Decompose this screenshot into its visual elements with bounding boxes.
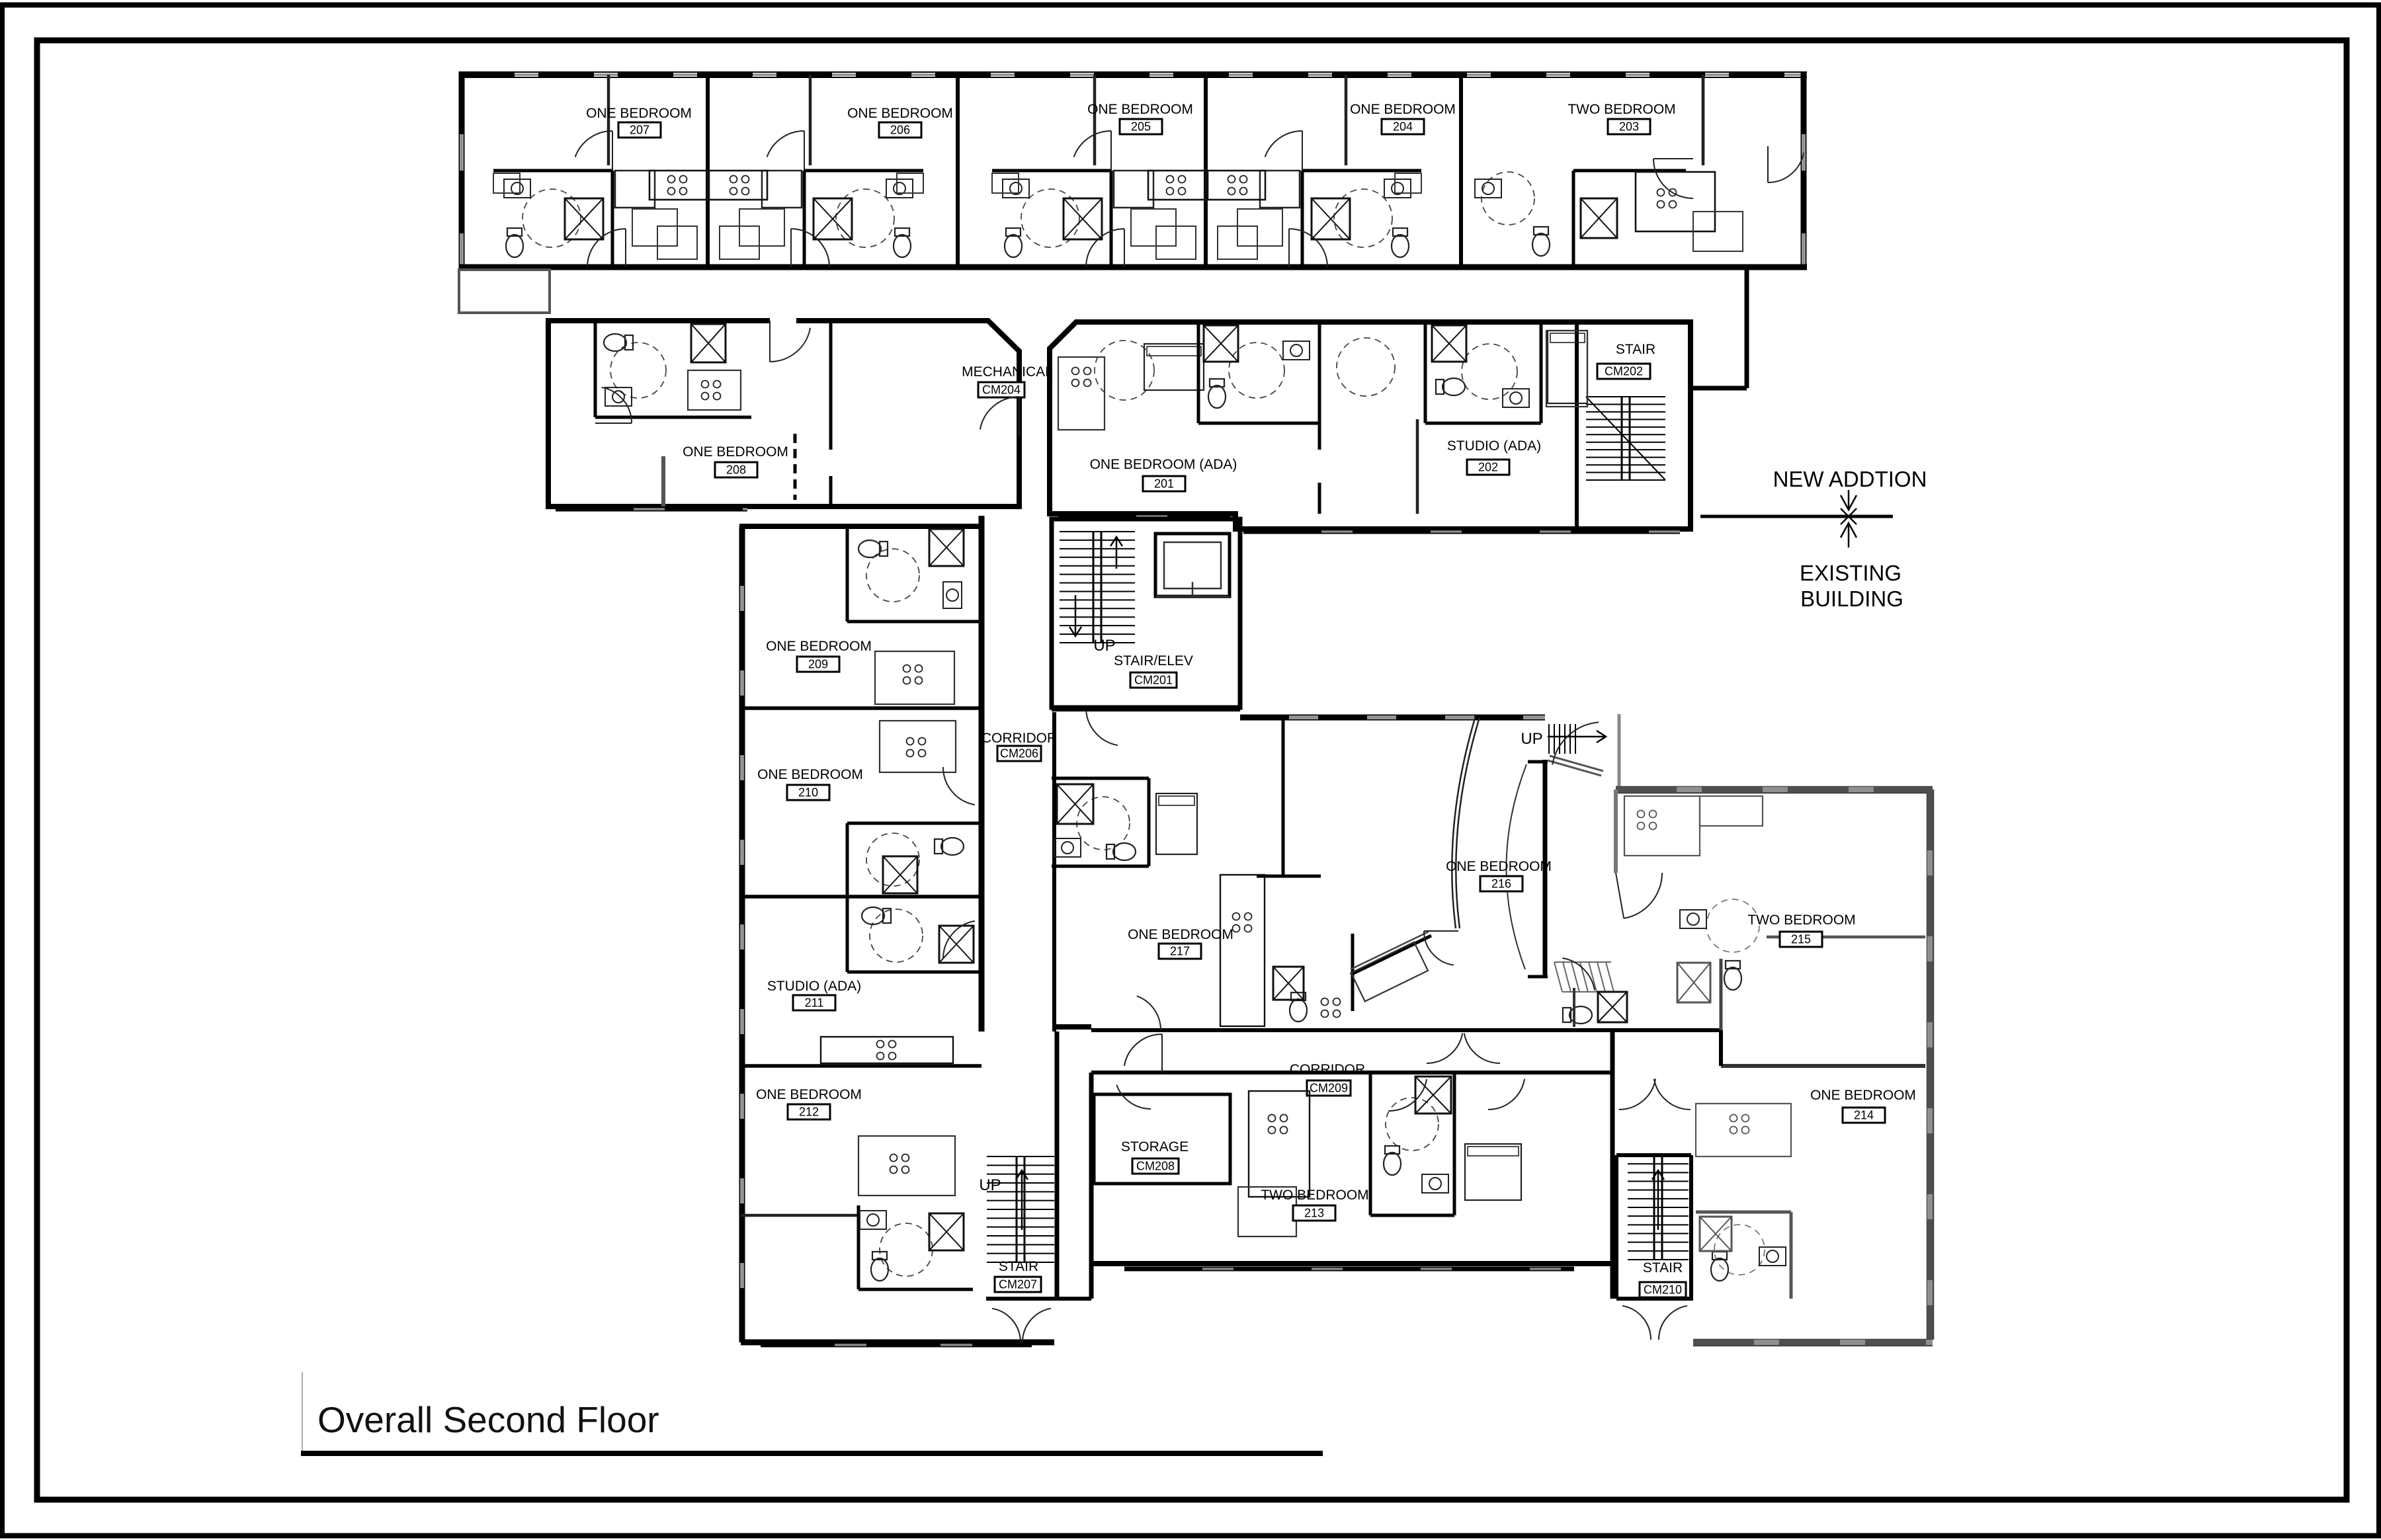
svg-text:ONE BEDROOM: ONE BEDROOM [683,444,788,460]
svg-text:ONE BEDROOM: ONE BEDROOM [1087,102,1193,117]
svg-text:UP: UP [1093,637,1115,655]
svg-text:204: 204 [1393,120,1413,134]
svg-text:TWO BEDROOM: TWO BEDROOM [1567,102,1675,117]
svg-text:ONE BEDROOM: ONE BEDROOM [586,106,692,121]
svg-text:210: 210 [798,786,818,799]
svg-text:CM209: CM209 [1310,1082,1348,1095]
svg-text:STORAGE: STORAGE [1121,1139,1189,1155]
svg-text:TWO BEDROOM: TWO BEDROOM [1747,912,1855,928]
svg-text:CM201: CM201 [1134,674,1173,687]
svg-text:ONE BEDROOM: ONE BEDROOM [1446,859,1552,874]
svg-text:CM204: CM204 [982,384,1021,397]
svg-text:203: 203 [1619,120,1639,134]
svg-text:CM208: CM208 [1136,1160,1175,1173]
svg-text:ONE BEDROOM: ONE BEDROOM [757,767,863,782]
svg-text:205: 205 [1131,120,1151,134]
svg-text:STAIR: STAIR [999,1259,1038,1274]
svg-text:STAIR: STAIR [1616,342,1655,357]
svg-text:207: 207 [630,124,649,137]
svg-text:CORRIDOR: CORRIDOR [982,731,1057,746]
svg-text:NEW ADDTION: NEW ADDTION [1773,467,1927,491]
svg-text:ONE BEDROOM: ONE BEDROOM [847,106,953,121]
svg-text:CM207: CM207 [999,1278,1037,1291]
svg-text:CM202: CM202 [1605,365,1643,378]
svg-text:211: 211 [805,996,824,1010]
svg-text:ONE BEDROOM: ONE BEDROOM [1810,1088,1916,1103]
svg-text:EXISTING: EXISTING [1800,561,1901,585]
svg-text:BUILDING: BUILDING [1800,587,1903,611]
svg-text:Overall Second Floor: Overall Second Floor [317,1399,659,1440]
svg-text:217: 217 [1170,945,1190,958]
svg-text:214: 214 [1854,1109,1874,1122]
svg-text:216: 216 [1491,877,1511,891]
svg-text:STUDIO (ADA): STUDIO (ADA) [767,979,861,994]
svg-text:MECHANICAL: MECHANICAL [962,364,1053,380]
svg-text:UP: UP [979,1176,1001,1194]
svg-text:206: 206 [890,124,910,137]
svg-text:TWO BEDROOM: TWO BEDROOM [1261,1188,1368,1203]
svg-text:CM206: CM206 [1000,747,1038,760]
svg-text:ONE BEDROOM: ONE BEDROOM [1350,102,1456,117]
svg-text:CORRIDOR: CORRIDOR [1290,1062,1365,1077]
svg-text:STAIR: STAIR [1643,1260,1683,1276]
svg-text:ONE BEDROOM: ONE BEDROOM [766,639,872,654]
svg-text:ONE BEDROOM: ONE BEDROOM [756,1087,862,1102]
svg-text:209: 209 [808,658,828,671]
svg-text:UP: UP [1521,730,1542,748]
svg-text:213: 213 [1304,1207,1324,1220]
svg-text:STUDIO (ADA): STUDIO (ADA) [1447,438,1541,454]
svg-text:212: 212 [799,1106,819,1119]
svg-text:STAIR/ELEV: STAIR/ELEV [1114,653,1193,669]
svg-text:202: 202 [1478,461,1498,474]
svg-text:208: 208 [726,464,746,477]
svg-text:ONE BEDROOM: ONE BEDROOM [1128,927,1233,942]
svg-text:CM210: CM210 [1644,1283,1682,1297]
svg-text:201: 201 [1154,477,1174,491]
svg-text:ONE BEDROOM (ADA): ONE BEDROOM (ADA) [1090,457,1237,472]
svg-text:215: 215 [1791,933,1811,946]
